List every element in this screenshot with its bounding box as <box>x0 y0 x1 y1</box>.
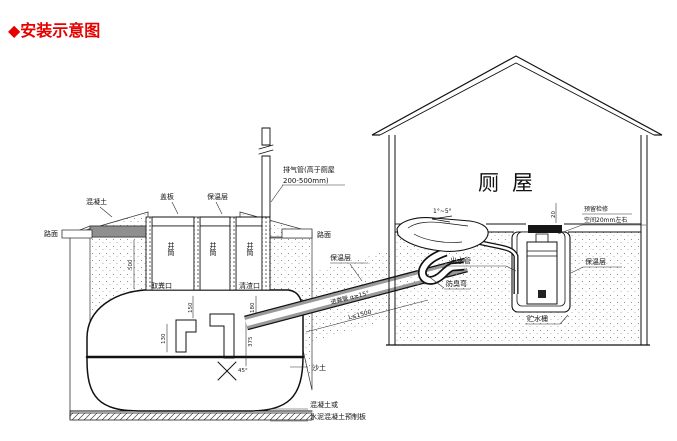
road-right-label: 路面 <box>317 230 331 239</box>
maintenance-cover <box>528 225 562 233</box>
road-surface-left <box>62 230 92 238</box>
shaft-compartments <box>152 226 262 290</box>
bucket-weight <box>538 290 546 298</box>
house-name-label: 厕屋 <box>478 171 546 195</box>
dim-45deg: 45° <box>238 368 248 374</box>
shaft-label-2: 井筒 <box>209 241 217 257</box>
dim-180: 180 <box>250 302 256 313</box>
dim-130: 130 <box>161 333 167 344</box>
base-note-2: 水泥混凝土预制板 <box>310 412 366 421</box>
road-left-label: 路面 <box>44 229 58 238</box>
vent-pipe-label-2: 200-500mm) <box>283 177 329 185</box>
road-surface-right <box>282 229 312 238</box>
concrete-label: 混凝土 <box>86 197 107 206</box>
slope-angle-label: 1°~5° <box>433 208 452 215</box>
pipe-insulation-label: 保温层 <box>330 253 351 262</box>
shaft-label-1: 井筒 <box>167 241 175 257</box>
fecal-port-label: 取粪口 <box>151 281 172 290</box>
outlet-pipe-label: 出水管 <box>450 256 471 265</box>
water-pit <box>512 232 570 312</box>
cover-plates <box>152 217 262 226</box>
dim-20: 20 <box>551 211 557 218</box>
dim-150: 150 <box>188 302 194 313</box>
pit-insulation-label: 保温层 <box>585 257 606 266</box>
page-title: ◆安装示意图 <box>8 21 100 40</box>
bucket-cap <box>536 234 548 242</box>
sand-label: 沙土 <box>312 363 326 372</box>
dim-375: 375 <box>248 336 254 347</box>
base-note-1: 混凝土或 <box>310 400 338 409</box>
dim-500: 500 <box>128 259 134 270</box>
slag-port-label: 清渣口 <box>239 281 260 290</box>
odor-trap-label: 防臭弯 <box>446 279 467 288</box>
cover-plate-label: 盖板 <box>160 192 174 201</box>
installation-diagram-page: ◆安装示意图 <box>0 0 677 441</box>
service-space-label-1: 预留检修 <box>584 205 608 213</box>
vent-pipe-label-1: 排气管(高于厕屋 <box>283 165 335 174</box>
shaft-label-3: 井筒 <box>246 241 254 257</box>
water-bucket-label: 贮水桶 <box>527 314 548 323</box>
insulation-top-label: 保温层 <box>207 192 228 201</box>
tank-body <box>87 290 303 411</box>
service-space-label-2: 空间20mm左右 <box>584 216 627 224</box>
installation-diagram: ◆安装示意图 <box>0 0 677 441</box>
